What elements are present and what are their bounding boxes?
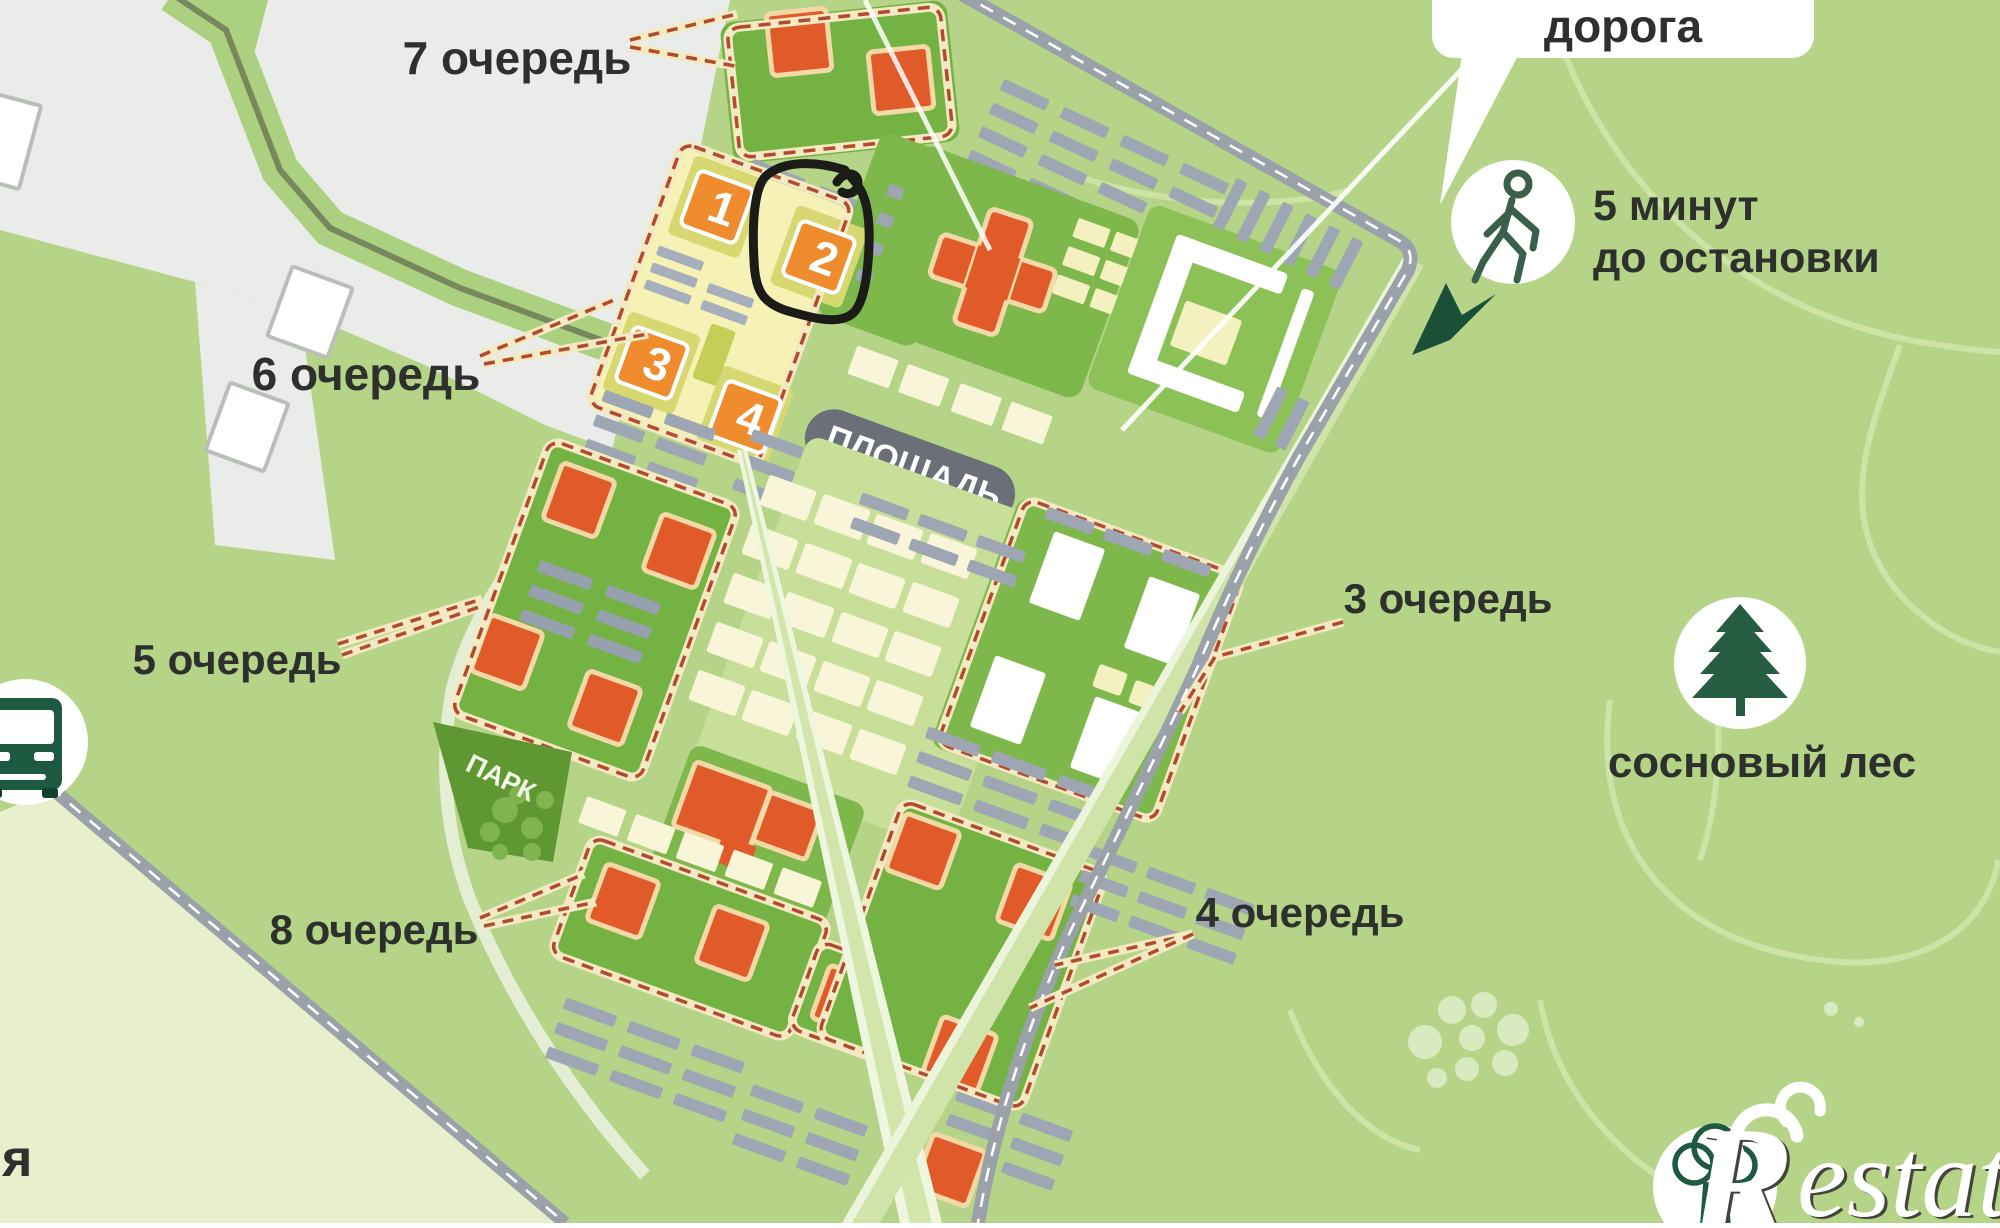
- svg-text:3 очередь: 3 очередь: [1344, 575, 1553, 622]
- svg-text:5 минут: 5 минут: [1593, 182, 1759, 230]
- svg-text:7 очередь: 7 очередь: [403, 32, 632, 84]
- svg-text:6 очередь: 6 очередь: [252, 348, 481, 400]
- svg-text:4 очередь: 4 очередь: [1196, 889, 1405, 936]
- svg-text:я: я: [1, 1130, 32, 1188]
- svg-text:8 очередь: 8 очередь: [270, 906, 479, 953]
- svg-text:5 очередь: 5 очередь: [133, 636, 342, 683]
- svg-text:дорога: дорога: [1544, 0, 1703, 52]
- svg-text:до остановки: до остановки: [1593, 234, 1880, 282]
- svg-text:сосновый лес: сосновый лес: [1608, 738, 1916, 787]
- svg-text:R: R: [1687, 1093, 1795, 1223]
- svg-text:estate: estate: [1797, 1117, 2000, 1223]
